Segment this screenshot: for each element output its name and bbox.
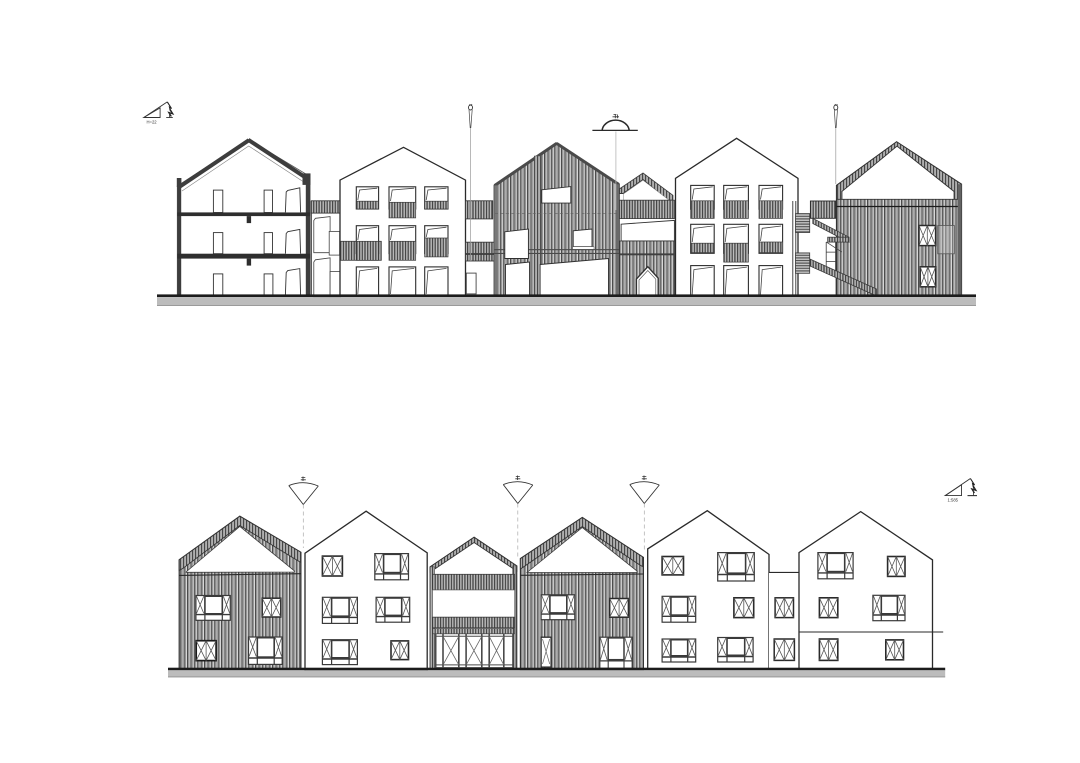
svg-text:1:585: 1:585	[948, 498, 959, 503]
svg-text:H=22: H=22	[147, 120, 158, 125]
